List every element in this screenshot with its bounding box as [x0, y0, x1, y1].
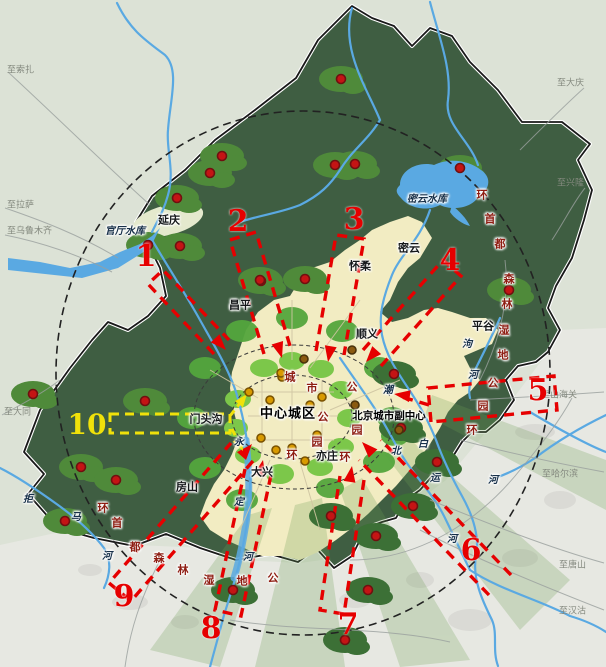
- amber-node-dot: [245, 388, 253, 396]
- red-node-dot: [341, 636, 350, 645]
- amber-node-dot: [301, 457, 309, 465]
- amber-node-dot: [318, 393, 326, 401]
- red-node-dot: [77, 463, 86, 472]
- brown-node-dot: [348, 346, 356, 354]
- red-node-dot: [372, 532, 381, 541]
- amber-node-dot: [266, 396, 274, 404]
- amber-node-dot: [313, 431, 321, 439]
- red-node-dot: [331, 161, 340, 170]
- red-node-dot: [144, 241, 153, 250]
- red-node-dot: [229, 586, 238, 595]
- brown-node-dot: [395, 426, 403, 434]
- red-node-dot: [256, 276, 265, 285]
- red-node-dot: [351, 160, 360, 169]
- amber-node-dot: [272, 446, 280, 454]
- red-node-dot: [433, 458, 442, 467]
- red-node-dot: [390, 370, 399, 379]
- red-node-dot: [409, 502, 418, 511]
- beijing-ventilation-corridor-map: 130: [0, 0, 606, 667]
- red-node-dot: [176, 242, 185, 251]
- red-node-dot: [61, 517, 70, 526]
- red-node-dot: [327, 512, 336, 521]
- red-node-dot: [505, 286, 514, 295]
- red-node-dot: [29, 390, 38, 399]
- brown-node-dot: [351, 401, 359, 409]
- red-node-dot: [218, 152, 227, 161]
- map-canvas: 130: [0, 0, 606, 667]
- red-node-dot: [173, 194, 182, 203]
- amber-node-dot: [288, 444, 296, 452]
- red-node-dot: [301, 275, 310, 284]
- red-node-dot: [206, 169, 215, 178]
- amber-node-dot: [257, 434, 265, 442]
- red-node-dot: [141, 397, 150, 406]
- amber-node-dot: [277, 369, 285, 377]
- amber-node-dot: [306, 401, 314, 409]
- brown-node-dot: [300, 355, 308, 363]
- red-node-dot: [337, 75, 346, 84]
- red-node-dot: [112, 476, 121, 485]
- red-node-dot: [456, 164, 465, 173]
- red-node-dot: [364, 586, 373, 595]
